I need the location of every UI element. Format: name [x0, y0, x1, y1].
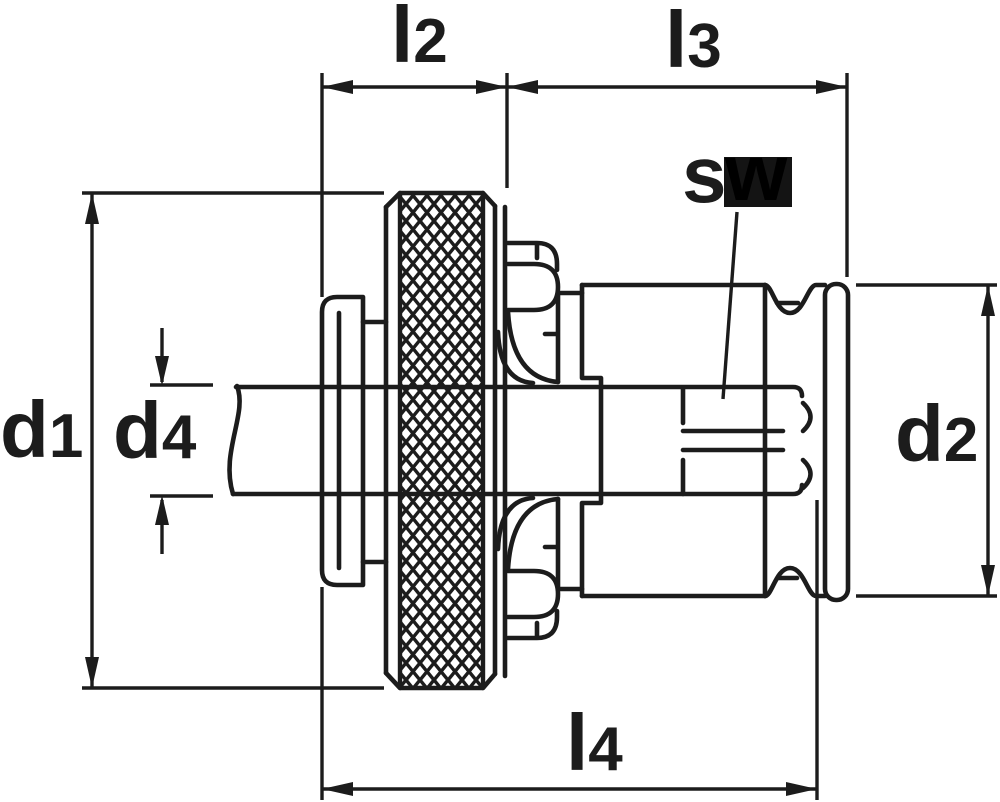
label-sw-highlight-box: w	[724, 157, 792, 207]
shank-break-curve	[229, 386, 239, 494]
sw-leader-line	[723, 212, 737, 399]
arrow-l2-left	[322, 80, 353, 94]
label-l4-sub: 4	[588, 715, 622, 784]
clamp-screw-top	[498, 243, 582, 383]
label-d2: d2	[895, 394, 978, 474]
label-l2: l2	[391, 0, 448, 75]
socket-end-arcs	[803, 403, 811, 488]
arrow-l3-right	[816, 80, 847, 94]
label-sw-w-glyph: w	[725, 157, 787, 207]
socket-flats	[683, 431, 783, 450]
label-d1-base: d	[0, 385, 49, 474]
extension-lines	[82, 73, 997, 800]
label-l3-sub: 3	[687, 12, 721, 81]
groove-top	[765, 285, 825, 313]
arrow-d1-bottom	[85, 657, 99, 688]
tap-shank	[229, 386, 802, 494]
end-flange-disc	[825, 284, 848, 600]
label-sw-s-glyph: s	[682, 130, 727, 219]
arrow-d4-top	[155, 356, 169, 386]
body-top-bottom	[582, 285, 765, 596]
arrow-d1-top	[85, 193, 99, 224]
arrow-l3-left	[507, 80, 538, 94]
label-l4: l4	[566, 703, 623, 783]
groove-ticks	[777, 303, 798, 578]
arrow-l2-right	[476, 80, 507, 94]
label-d2-base: d	[895, 389, 944, 478]
drawing-canvas: l2 l3 d1 d4 d2 l4 s w	[0, 0, 1000, 802]
label-l2-sub: 2	[413, 7, 447, 76]
label-d1-sub: 1	[49, 402, 83, 471]
collar-outline	[322, 297, 363, 585]
screw-top-head	[508, 264, 558, 310]
label-d4-sub: 4	[162, 403, 196, 472]
screw-bottom-head	[508, 571, 558, 617]
label-l3-base: l	[665, 0, 687, 84]
label-d4: d4	[113, 391, 196, 471]
front-collar	[322, 297, 386, 585]
label-l2-base: l	[391, 0, 413, 79]
label-d1: d1	[0, 390, 83, 470]
body-front-face	[582, 285, 601, 596]
arrow-d4-bottom	[155, 495, 169, 525]
square-drive-socket	[683, 389, 811, 494]
shank-bottom-line	[233, 485, 802, 494]
knurled-ring	[386, 193, 505, 688]
arrow-l4-left	[322, 782, 353, 796]
coupling-body	[582, 285, 765, 596]
arrow-d2-top	[981, 285, 995, 316]
label-d2-sub: 2	[944, 406, 978, 475]
clamp-screw-bottom	[498, 498, 582, 638]
label-l3: l3	[665, 0, 722, 80]
label-sw-s: s	[682, 135, 727, 215]
arrow-d2-bottom	[981, 565, 995, 596]
arrow-l4-right	[786, 782, 817, 796]
label-d4-base: d	[113, 386, 162, 475]
collar-neck-edges	[363, 322, 386, 562]
label-l4-base: l	[566, 698, 588, 787]
knurl-crosshatch	[400, 193, 483, 688]
